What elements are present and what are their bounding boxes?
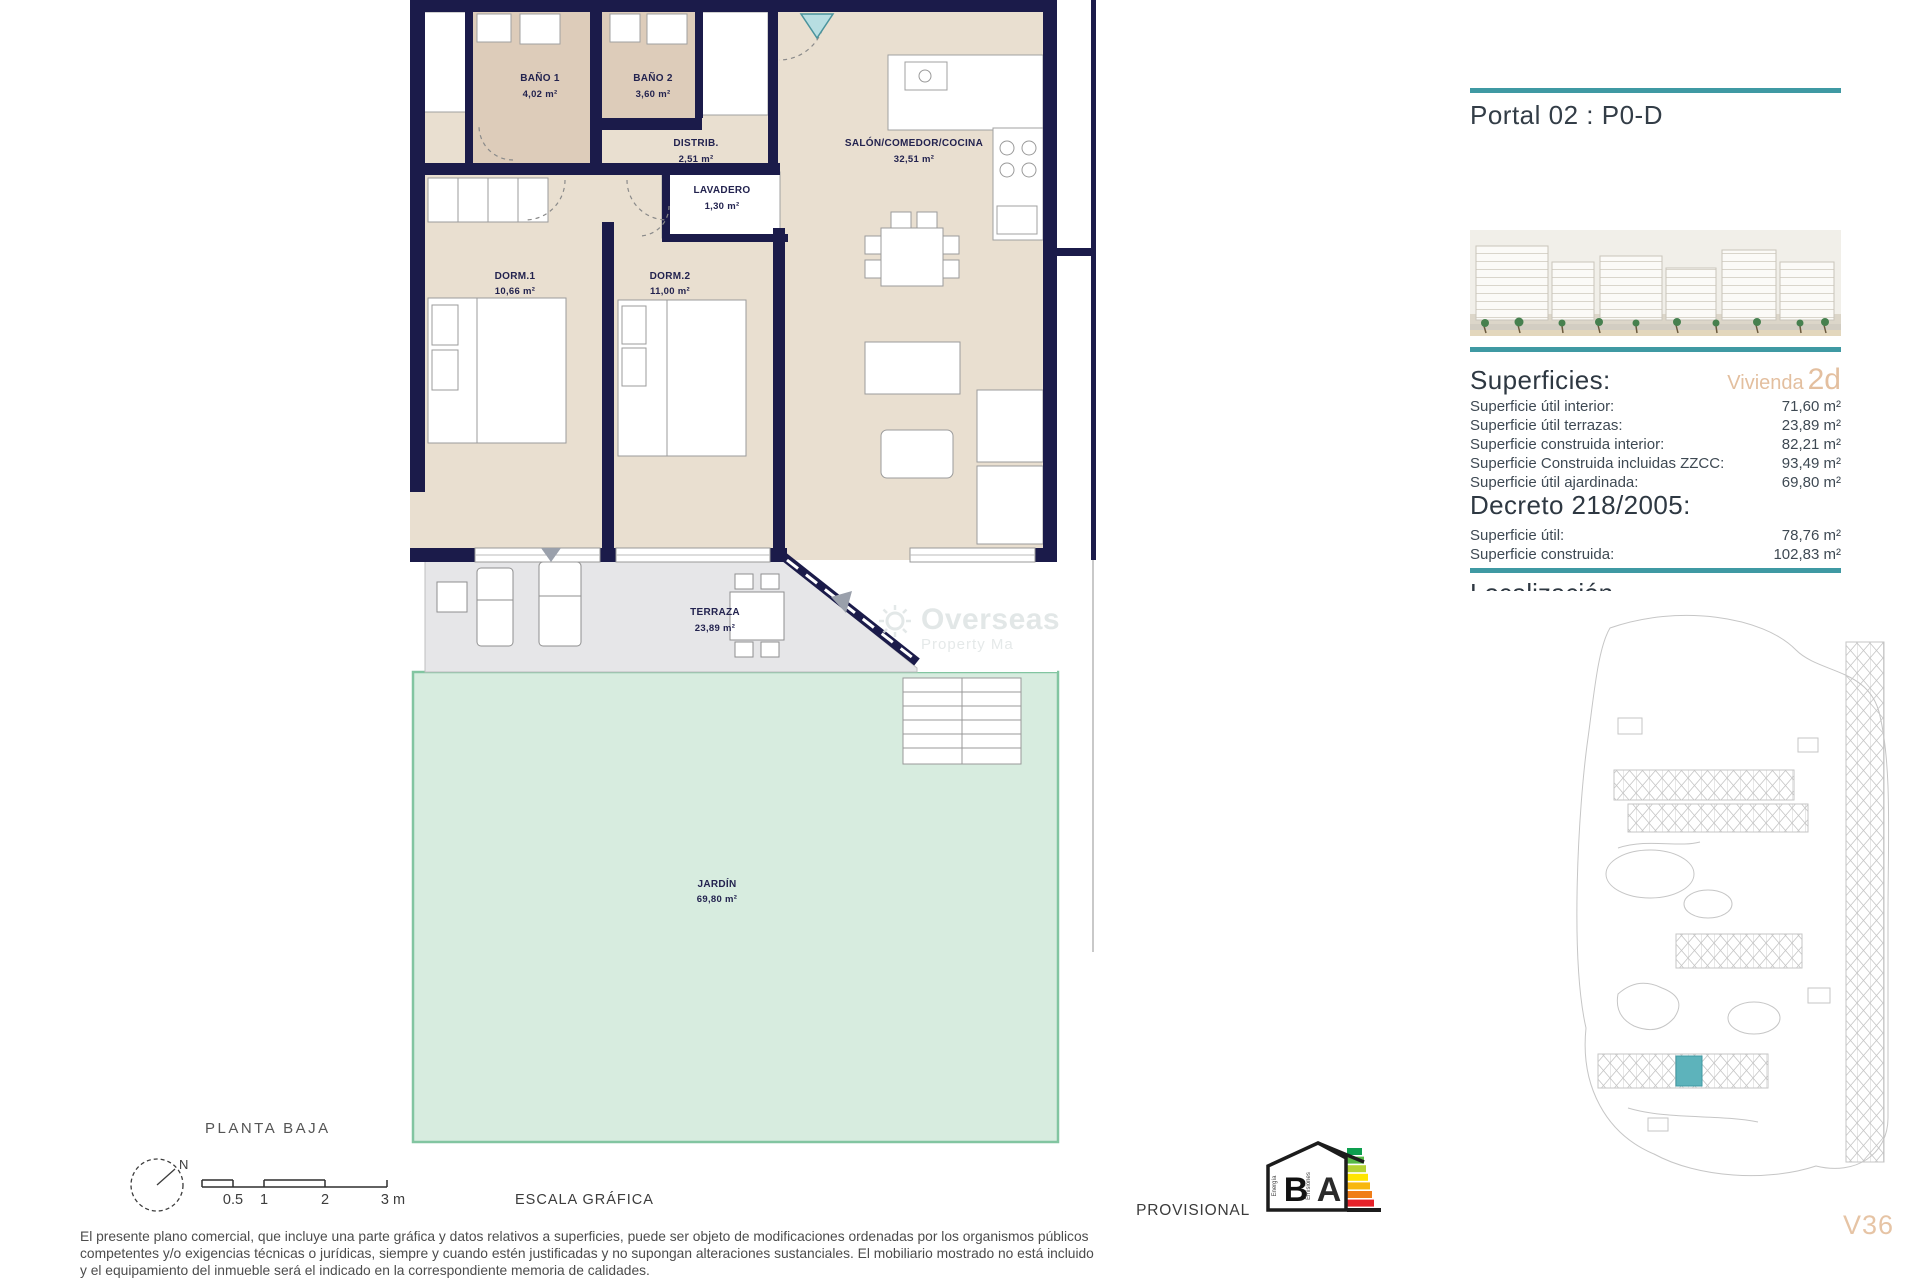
decreto-heading: Decreto 218/2005: <box>1470 490 1691 521</box>
floor-plan-drawing: BAÑO 1 4,02 m² BAÑO 2 3,60 m² DISTRIB. 2… <box>325 0 1125 1165</box>
energy-word-energia: Energía <box>1272 1175 1278 1197</box>
compass-icon: N <box>127 1155 197 1225</box>
vivienda-code: 2d <box>1808 363 1841 396</box>
room-area: 69,80 m² <box>697 894 737 905</box>
watermark: Overseas Property Ma <box>878 604 1060 653</box>
table-row: Superficie útil interior:71,60 m² <box>1470 398 1841 417</box>
row-label: Superficie construida: <box>1470 546 1614 565</box>
watermark-line2: Property Ma <box>921 636 1060 653</box>
table-row: Superficie útil terrazas:23,89 m² <box>1470 417 1841 436</box>
watermark-line1: Overseas <box>921 604 1060 636</box>
row-value: 78,76 m² <box>1782 527 1841 546</box>
row-value: 23,89 m² <box>1782 417 1841 436</box>
room-area: 10,66 m² <box>495 286 535 297</box>
accent-divider <box>1470 88 1841 93</box>
highlighted-unit <box>1676 1056 1702 1086</box>
energy-word-emisiones: Emisiones <box>1306 1172 1312 1200</box>
room-area: 23,89 m² <box>695 623 735 634</box>
row-label: Superficie construida interior: <box>1470 436 1664 455</box>
room-label: TERRAZA <box>690 607 740 618</box>
scale-label: ESCALA GRÁFICA <box>515 1191 654 1208</box>
legal-disclaimer: El presente plano comercial, que incluye… <box>80 1228 1410 1279</box>
room-label: JARDÍN <box>697 877 736 890</box>
accent-divider <box>1470 347 1841 352</box>
site-plan-drawing <box>1558 598 1912 1196</box>
energy-rating-icon: B A Energía Emisiones <box>1260 1138 1386 1226</box>
north-label: N <box>179 1157 188 1172</box>
room-label: LAVADERO <box>693 185 750 196</box>
superficies-heading: Superficies: <box>1470 365 1611 396</box>
room-label: BAÑO 2 <box>633 71 673 84</box>
room-area: 11,00 m² <box>650 286 690 297</box>
row-value: 71,60 m² <box>1782 398 1841 417</box>
room-area: 2,51 m² <box>679 154 714 165</box>
garden-stairs <box>903 678 1021 764</box>
table-row: Superficie útil:78,76 m² <box>1470 527 1841 546</box>
row-label: Superficie útil terrazas: <box>1470 417 1623 436</box>
vivienda-badge: Vivienda2d <box>1727 363 1841 397</box>
energy-letter-b: B <box>1284 1171 1309 1209</box>
accent-divider <box>1470 568 1841 573</box>
room-area: 3,60 m² <box>636 89 671 100</box>
page-title: Portal 02 : P0-D <box>1470 100 1663 131</box>
table-row: Superficie Construida incluidas ZZCC:93,… <box>1470 455 1841 474</box>
row-label: Superficie útil interior: <box>1470 398 1614 417</box>
reference-code: V36 <box>1843 1210 1894 1241</box>
scale-bar: 0.5 1 2 3 m ESCALA GRÁFICA <box>195 1168 735 1213</box>
scale-tick: 0.5 <box>223 1192 243 1208</box>
row-value: 82,21 m² <box>1782 436 1841 455</box>
row-label: Superficie Construida incluidas ZZCC: <box>1470 455 1724 474</box>
table-row: Superficie construida interior:82,21 m² <box>1470 436 1841 455</box>
provisional-label: PROVISIONAL <box>1085 1202 1250 1220</box>
scale-tick: 3 m <box>381 1192 405 1208</box>
dining-table <box>881 228 943 286</box>
row-label: Superficie útil: <box>1470 527 1564 546</box>
room-area: 4,02 m² <box>523 89 558 100</box>
row-value: 93,49 m² <box>1782 455 1841 474</box>
superficies-table: Superficie útil interior:71,60 m² Superf… <box>1470 398 1841 493</box>
sun-icon <box>878 604 912 638</box>
scale-tick: 1 <box>260 1192 268 1208</box>
decreto-table: Superficie útil:78,76 m² Superficie cons… <box>1470 527 1841 565</box>
room-label: DORM.1 <box>495 271 536 282</box>
room-label: SALÓN/COMEDOR/COCINA <box>845 136 983 149</box>
floor-label: PLANTA BAJA <box>205 1120 331 1137</box>
clipped-heading: Localización <box>1470 580 1613 591</box>
row-value: 69,80 m² <box>1782 474 1841 493</box>
sofa <box>865 342 960 394</box>
room-area: 1,30 m² <box>705 201 740 212</box>
vivienda-label: Vivienda <box>1727 372 1803 394</box>
floor-plan-page: BAÑO 1 4,02 m² BAÑO 2 3,60 m² DISTRIB. 2… <box>0 0 1920 1280</box>
armchair <box>881 430 953 478</box>
disclaimer-line: y el equipamiento del inmueble será el i… <box>80 1262 1410 1279</box>
disclaimer-line: El presente plano comercial, que incluye… <box>80 1228 1410 1245</box>
row-value: 102,83 m² <box>1773 546 1841 565</box>
room-area: 32,51 m² <box>894 154 934 165</box>
room-label: BAÑO 1 <box>520 71 560 84</box>
room-label: DISTRIB. <box>673 138 718 149</box>
energy-letter-a: A <box>1317 1171 1342 1209</box>
table-row: Superficie construida:102,83 m² <box>1470 546 1841 565</box>
room-label: DORM.2 <box>650 271 691 282</box>
building-photo <box>1470 230 1841 336</box>
scale-tick: 2 <box>321 1192 329 1208</box>
disclaimer-line: competentes y/o exigencias técnicas o ju… <box>80 1245 1410 1262</box>
